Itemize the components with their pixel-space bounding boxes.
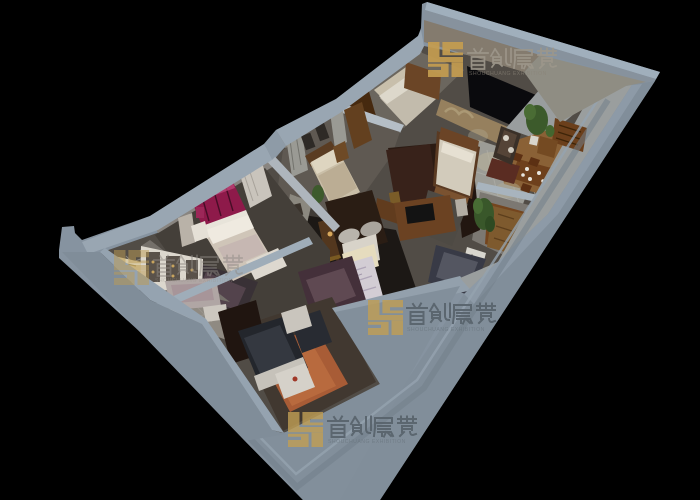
svg-text:SHOUCHUANG EXHIBITION: SHOUCHUANG EXHIBITION <box>469 71 547 77</box>
svg-text:SHOUCHUANG EXHIBITION: SHOUCHUANG EXHIBITION <box>407 327 485 333</box>
svg-text:SHOUCHUANG EXHIBITION: SHOUCHUANG EXHIBITION <box>155 278 233 284</box>
svg-text:SHOUCHUANG EXHIBITION: SHOUCHUANG EXHIBITION <box>328 439 406 445</box>
